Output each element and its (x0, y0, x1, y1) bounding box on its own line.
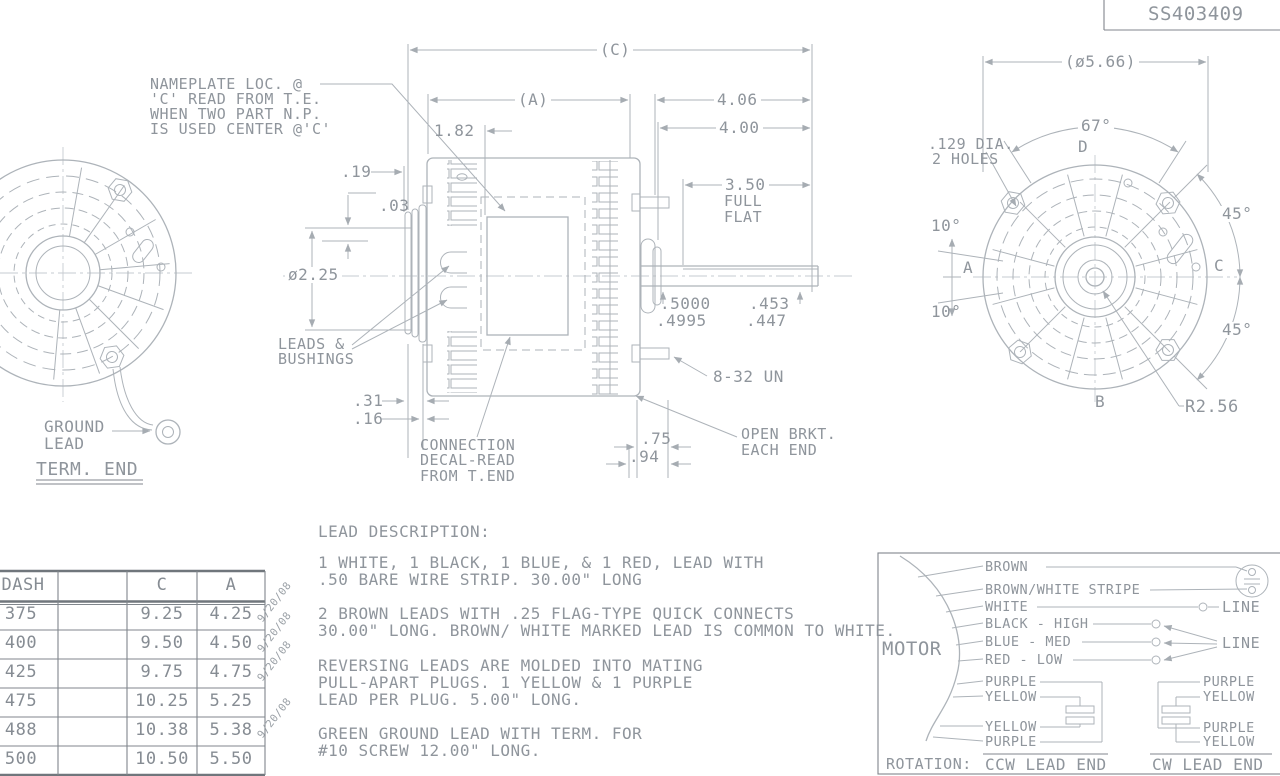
shaft-flat-upper: .453 (749, 296, 790, 312)
dim-10-degrees-bottom: 10° (931, 304, 961, 320)
table-cell-c: 10.50 (127, 751, 197, 768)
table-cell-a: 5.38 (197, 722, 265, 739)
dim-overall-length-c: (C) (597, 42, 633, 58)
cw-rotation-caption: CW LEAD END (1152, 757, 1263, 773)
ground-lead-wire (113, 369, 152, 430)
table-cell-a: 5.25 (197, 693, 265, 710)
lead-description-p3-l2: PULL-APART PLUGS. 1 YELLOW & 1 PURPLE (318, 675, 693, 691)
dim-0-19: .19 (341, 164, 371, 180)
lead-description-p3-l3: LEAD PER PLUG. 5.00" LONG. (318, 692, 581, 708)
wire-label-white: WHITE (985, 601, 1028, 615)
vent-slots (447, 160, 477, 226)
dim-3-50-flat: FLAT (724, 210, 762, 225)
point-d-label: D (1078, 139, 1088, 155)
speed-tap-terminal (1152, 656, 1160, 664)
ccw-rotation-caption: CCW LEAD END (985, 757, 1107, 773)
dim-4-06: 4.06 (714, 92, 761, 108)
cw-wire-label-yellow-2: YELLOW (1203, 736, 1255, 750)
side-view-art (283, 158, 856, 397)
lead-description-p4-l2: #10 SCREW 12.00" LONG. (318, 743, 541, 759)
table-cell-a: 4.50 (197, 635, 265, 652)
nameplate-note-line4: IS USED CENTER @'C' (150, 122, 331, 137)
connection-decal-outline (481, 197, 585, 350)
wire-label-black-high: BLACK - HIGH (985, 618, 1089, 632)
stud-thread-callout: 8-32 UN (713, 369, 784, 385)
lead-description-p1-l1: 1 WHITE, 1 BLACK, 1 BLUE, & 1 RED, LEAD … (318, 555, 764, 571)
lead-description-p2-l1: 2 BROWN LEADS WITH .25 FLAG-TYPE QUICK C… (318, 606, 794, 622)
dim-1-82: 1.82 (434, 123, 475, 139)
speed-tap-terminal (1152, 638, 1160, 646)
ground-lead-label-line2: LEAD (44, 436, 85, 452)
dim-45-degrees-bottom: 45° (1219, 322, 1255, 338)
lead-description-title: LEAD DESCRIPTION: (318, 524, 490, 540)
dim-0-31: .31 (353, 393, 383, 409)
shaft-flat-lower: .447 (746, 313, 787, 329)
wire-label-red-low: RED - LOW (985, 654, 1063, 668)
wire-label-brown: BROWN (985, 561, 1028, 575)
table-cell-a: 5.50 (197, 751, 265, 768)
table-cell-c: 9.25 (127, 606, 197, 623)
dim-radius-r2-56: R2.56 (1185, 399, 1239, 416)
ccw-wire-label-yellow-2: YELLOW (985, 721, 1037, 735)
shaft-end-view-dimensions (938, 56, 1240, 406)
decal-note-line3: FROM T.END (420, 469, 515, 484)
decal-note-line2: DECAL-READ (420, 453, 515, 468)
table-cell-dash: 488 (0, 722, 52, 739)
table-cell-c: 10.25 (127, 693, 197, 710)
open-bracket-note-line2: EACH END (741, 443, 817, 458)
table-header-dash: DASH (0, 577, 54, 594)
lead-description-p1-l2: .50 BARE WIRE STRIP. 30.00" LONG (318, 572, 642, 588)
line-label-top: LINE (1222, 600, 1260, 615)
wire-label-blue-med: BLUE - MED (985, 636, 1071, 650)
dim-10-degrees-top: 10° (931, 218, 961, 234)
speed-tap-terminal (1152, 620, 1160, 628)
threaded-stud (640, 197, 669, 208)
dim-4-00: 4.00 (716, 120, 763, 136)
dim-0-16: .16 (353, 411, 383, 427)
dim-3-50: 3.50 (722, 177, 769, 193)
ccw-wire-label-purple-2: PURPLE (985, 736, 1037, 750)
lead-description-p4-l1: GREEN GROUND LEAD WITH TERM. FOR (318, 726, 642, 742)
line-label-bottom: LINE (1222, 636, 1260, 651)
dim-0-94: .94 (629, 449, 659, 465)
table-header-c: C (127, 577, 197, 594)
table-cell-dash: 425 (0, 664, 52, 681)
ring-terminal (156, 420, 180, 444)
cw-wire-label-yellow-1: YELLOW (1203, 691, 1255, 705)
lead-description-p3-l1: REVERSING LEADS ARE MOLDED INTO MATING (318, 658, 703, 674)
open-bracket-note-line1: OPEN BRKT. (741, 427, 836, 442)
part-number: SS403409 (1148, 5, 1244, 24)
dim-body-length-a: (A) (515, 92, 551, 108)
plug-connector (1162, 706, 1190, 713)
rotation-label: ROTATION: (886, 757, 972, 772)
table-cell-dash: 475 (0, 693, 52, 710)
dim-hub-diameter: ø2.25 (285, 267, 342, 283)
ccw-wire-label-yellow-1: YELLOW (985, 691, 1037, 705)
ground-lead-label-line1: GROUND (44, 419, 105, 435)
engineering-drawing-sheet: SS403409 GROUND LEAD TERM. END NAMEPLATE… (0, 0, 1280, 776)
dim-3-50-full: FULL (724, 194, 762, 209)
plug-connector (1066, 706, 1094, 713)
lead-description-p2-l2: 30.00" LONG. BROWN/ WHITE MARKED LEAD IS… (318, 623, 896, 639)
point-c-label: C (1214, 258, 1224, 274)
table-cell-c: 9.75 (127, 664, 197, 681)
lead-bushing (441, 287, 468, 308)
shaft-diameter-lower: .4995 (656, 313, 707, 329)
table-cell-a: 4.75 (197, 664, 265, 681)
motor-label: MOTOR (882, 640, 942, 659)
point-b-label: B (1095, 394, 1105, 410)
table-cell-a: 4.25 (197, 606, 265, 623)
table-cell-dash: 500 (0, 751, 52, 768)
table-cell-c: 10.38 (127, 722, 197, 739)
vent-slots (447, 331, 477, 393)
shaft-diameter-upper: .5000 (660, 296, 711, 312)
threaded-stud (640, 348, 669, 359)
cw-wire-label-purple-1: PURPLE (1203, 676, 1255, 690)
point-a-label: A (963, 260, 973, 276)
holes-note-line2: 2 HOLES (932, 152, 999, 167)
wire-label-brown-white: BROWN/WHITE STRIPE (985, 584, 1140, 598)
ccw-wire-label-purple-1: PURPLE (985, 676, 1037, 690)
dim-45-degrees-top: 45° (1219, 206, 1255, 222)
table-cell-c: 9.50 (127, 635, 197, 652)
leads-bushings-label-line2: BUSHINGS (278, 352, 354, 367)
table-cell-dash: 375 (0, 606, 52, 623)
vent-slots (592, 161, 618, 397)
dim-end-view-diameter: (ø5.66) (1062, 54, 1139, 70)
table-cell-dash: 400 (0, 635, 52, 652)
shaft-end-view-art (973, 155, 1237, 402)
term-end-caption: TERM. END (36, 461, 138, 479)
line-terminal (1199, 603, 1207, 611)
dim-0-03: .03 (379, 198, 409, 214)
capacitor-symbol (1236, 565, 1268, 597)
dim-0-75: .75 (641, 431, 671, 447)
dim-67-degrees: 67° (1078, 118, 1114, 134)
table-header-a: A (197, 577, 265, 594)
